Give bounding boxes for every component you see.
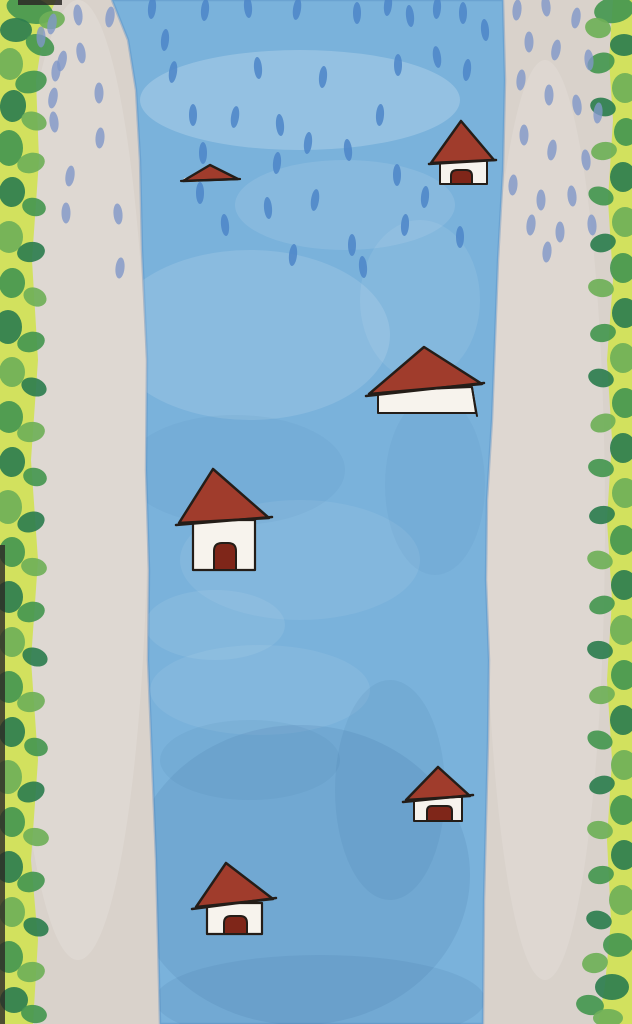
house-door: [451, 170, 472, 184]
drawing-canvas: [0, 0, 632, 1024]
artwork-photo: [0, 0, 632, 1024]
house-door: [224, 916, 247, 934]
house-door: [427, 806, 452, 821]
house-door: [214, 543, 236, 570]
